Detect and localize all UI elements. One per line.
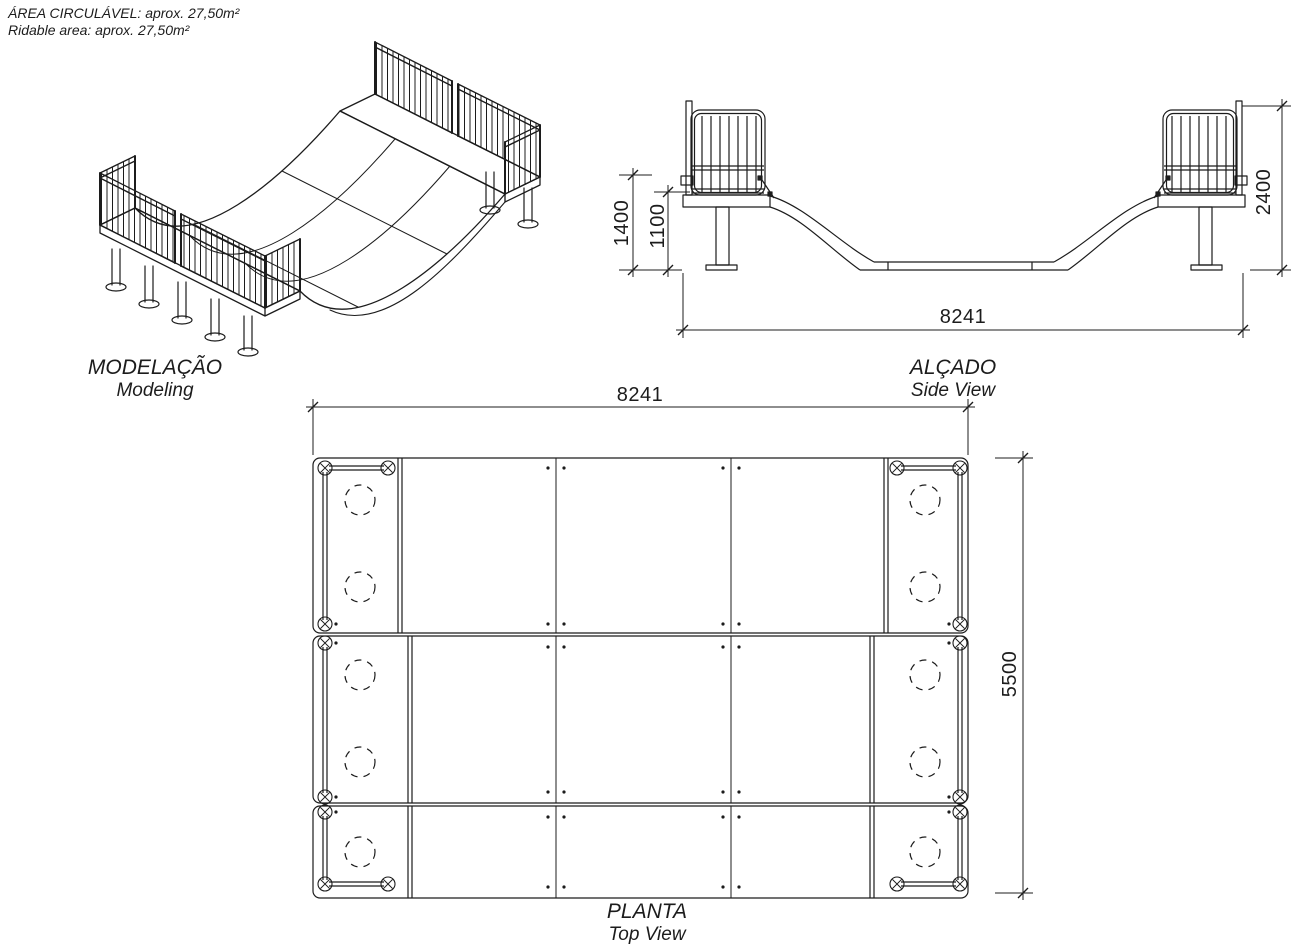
area-note-line-1: ÁREA CIRCULÁVEL: aprox. 27,50m² [8,5,239,22]
side-view-title: ALÇADO [853,356,1053,380]
drawing-sheet: ÁREA CIRCULÁVEL: aprox. 27,50m² Ridable … [0,0,1298,945]
dim-plan-width: 8241 [590,384,690,407]
top-view-drawing [313,458,968,898]
modeling-view-drawing [100,42,540,356]
modeling-view-title: MODELAÇÃO [55,356,255,380]
ramp-technical-drawing [0,0,1298,945]
top-view-title: PLANTA [547,900,747,924]
side-view-subtitle: Side View [853,380,1053,402]
side-view-drawing [681,101,1247,270]
dim-side-deck-height: 1100 [647,181,669,271]
top-view-subtitle: Top View [547,924,747,945]
dim-plan-depth: 5500 [999,629,1021,719]
area-note-line-2: Ridable area: aprox. 27,50m² [8,22,189,39]
dim-side-total-width: 8241 [913,306,1013,329]
dimension-lines [306,99,1291,900]
dim-side-coping-height: 1400 [611,178,633,268]
modeling-view-subtitle: Modeling [55,380,255,402]
dim-side-total-height: 2400 [1253,147,1275,237]
